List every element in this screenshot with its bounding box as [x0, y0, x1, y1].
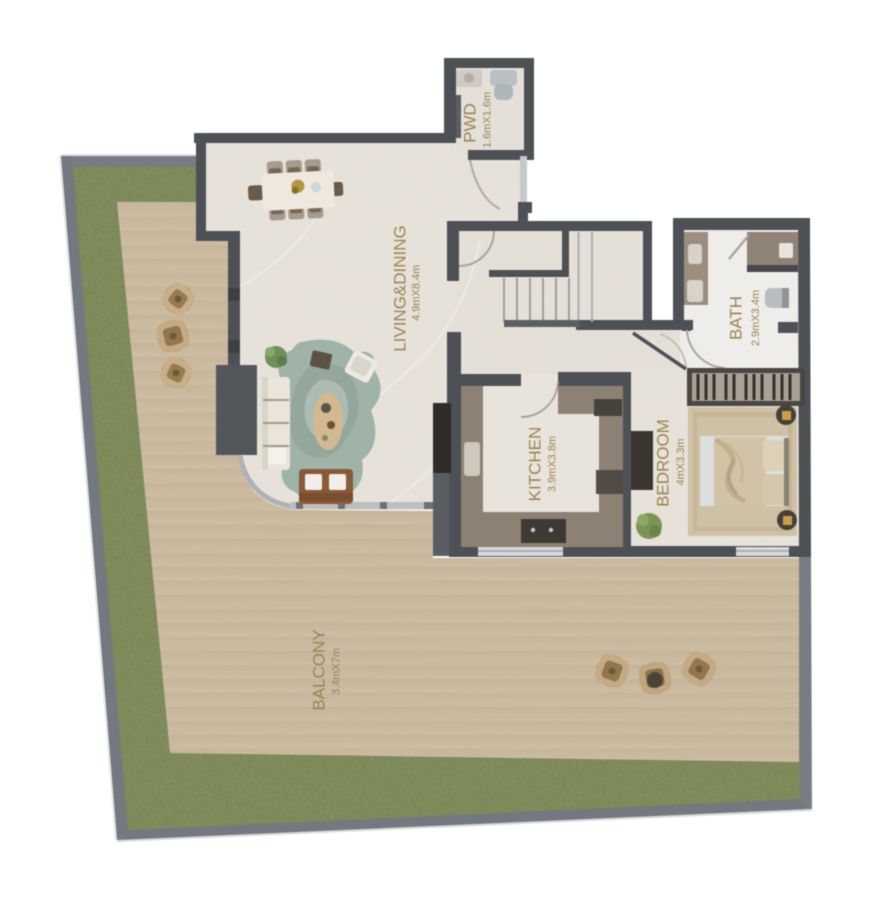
svg-text:3.4mX7m: 3.4mX7m [331, 648, 343, 695]
svg-text:KITCHEN: KITCHEN [525, 427, 544, 502]
svg-text:BALCONY: BALCONY [310, 629, 329, 710]
svg-text:LIVING&DINING: LIVING&DINING [390, 225, 409, 352]
svg-text:BATH: BATH [727, 296, 746, 340]
svg-text:PWD: PWD [460, 103, 479, 143]
svg-text:3.9mX3.8m: 3.9mX3.8m [546, 436, 558, 492]
svg-text:BEDROOM: BEDROOM [654, 419, 673, 507]
svg-text:1.6mX1.6m: 1.6mX1.6m [481, 92, 493, 148]
svg-text:4.9mX8.4m: 4.9mX8.4m [411, 265, 423, 321]
svg-text:4mX3.3m: 4mX3.3m [675, 438, 687, 485]
svg-text:2.9mX3.4m: 2.9mX3.4m [750, 290, 762, 346]
